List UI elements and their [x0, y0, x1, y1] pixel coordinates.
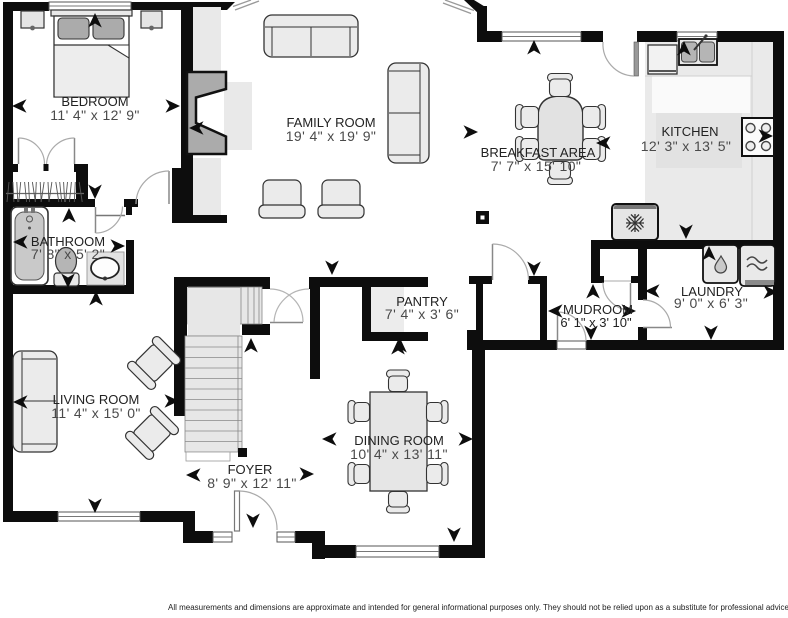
- svg-text:KITCHEN: KITCHEN: [661, 124, 718, 139]
- svg-text:19' 4" x 19' 9": 19' 4" x 19' 9": [286, 128, 377, 144]
- svg-text:7' 7" x 15' 10": 7' 7" x 15' 10": [491, 158, 582, 174]
- svg-text:8' 9" x 12' 11": 8' 9" x 12' 11": [207, 475, 297, 491]
- svg-text:9' 0" x 6' 3": 9' 0" x 6' 3": [674, 295, 748, 311]
- svg-text:All measurements and dimension: All measurements and dimensions are appr…: [168, 603, 788, 612]
- svg-text:7' 4" x 3' 6": 7' 4" x 3' 6": [385, 306, 459, 322]
- svg-text:7' 8" x 5' 2": 7' 8" x 5' 2": [31, 246, 105, 262]
- svg-text:6' 1" x 3' 10": 6' 1" x 3' 10": [560, 315, 632, 330]
- svg-text:11' 4" x 12' 9": 11' 4" x 12' 9": [50, 107, 140, 123]
- svg-text:11' 4" x 15' 0": 11' 4" x 15' 0": [51, 405, 141, 421]
- svg-text:12' 3" x 13' 5": 12' 3" x 13' 5": [641, 138, 732, 154]
- svg-text:10' 4" x 13' 11": 10' 4" x 13' 11": [350, 446, 448, 462]
